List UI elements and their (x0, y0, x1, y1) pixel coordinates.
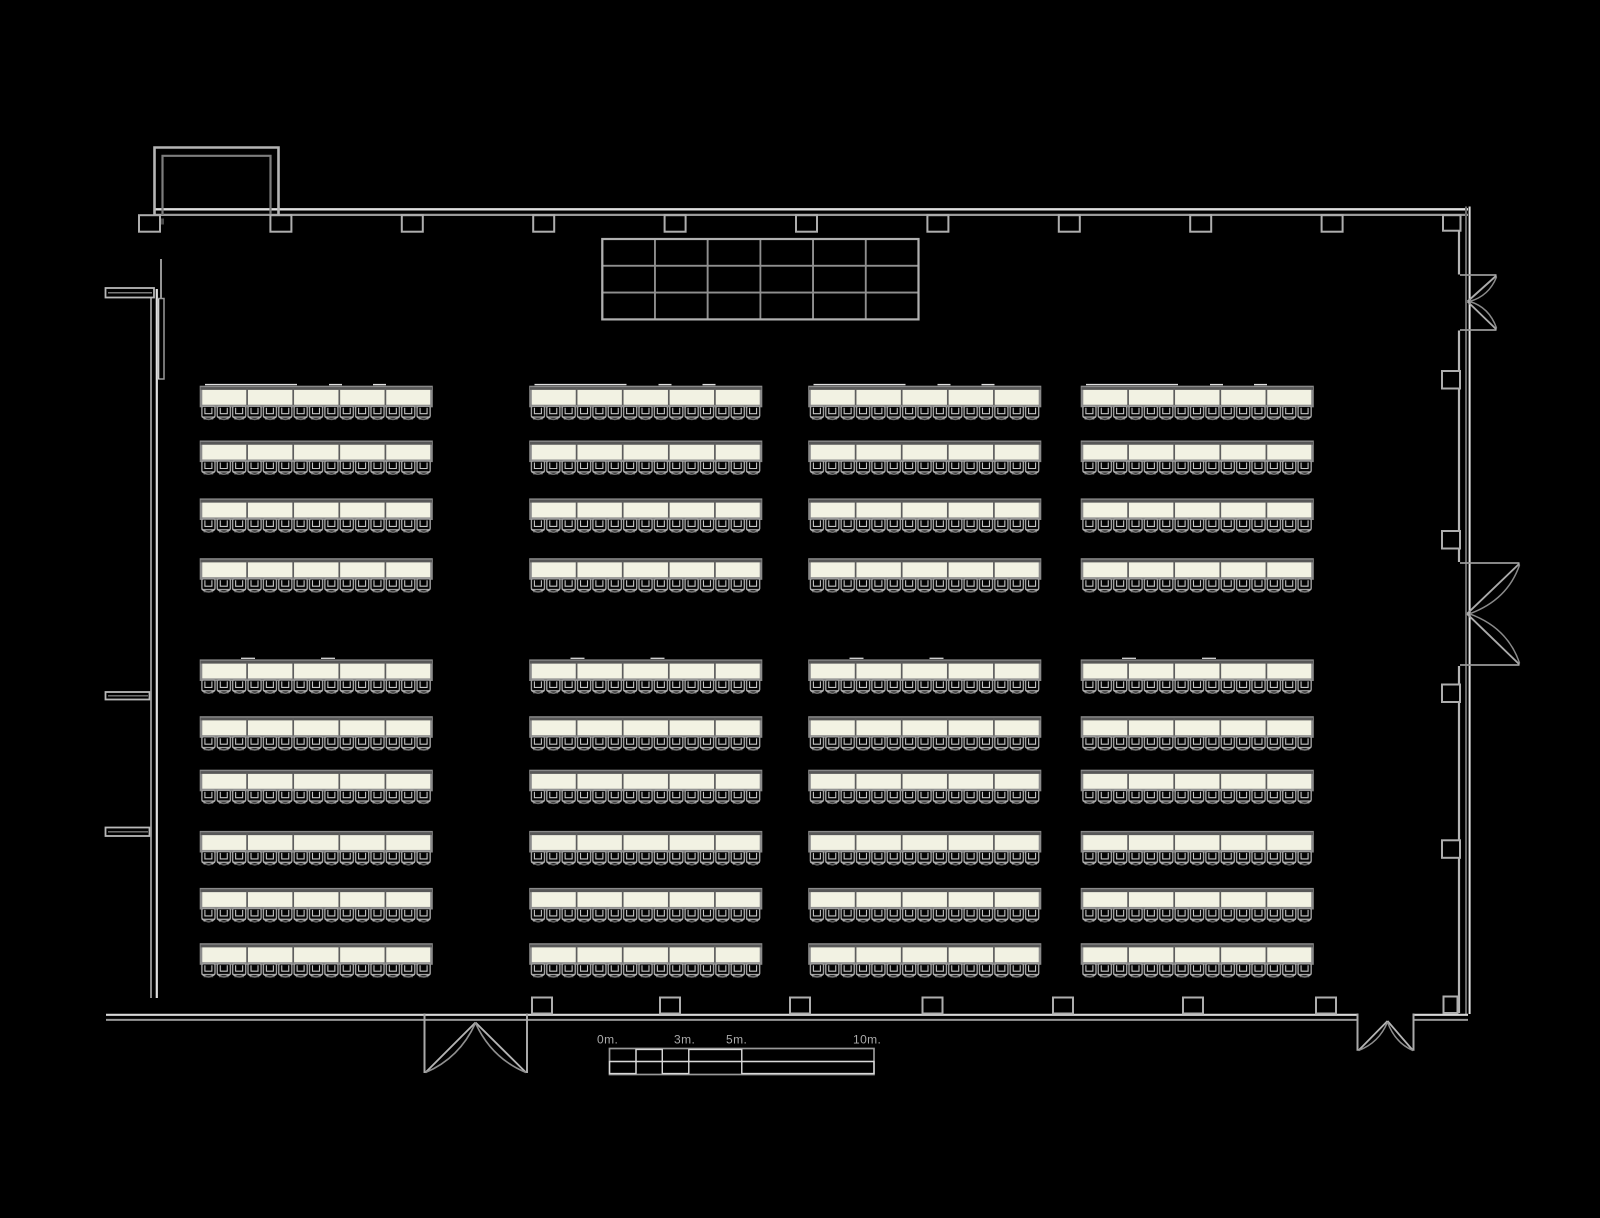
svg-text:3m.: 3m. (674, 1033, 695, 1047)
svg-text:10m.: 10m. (853, 1033, 881, 1047)
svg-text:0m.: 0m. (597, 1033, 618, 1047)
svg-text:5m.: 5m. (726, 1033, 747, 1047)
